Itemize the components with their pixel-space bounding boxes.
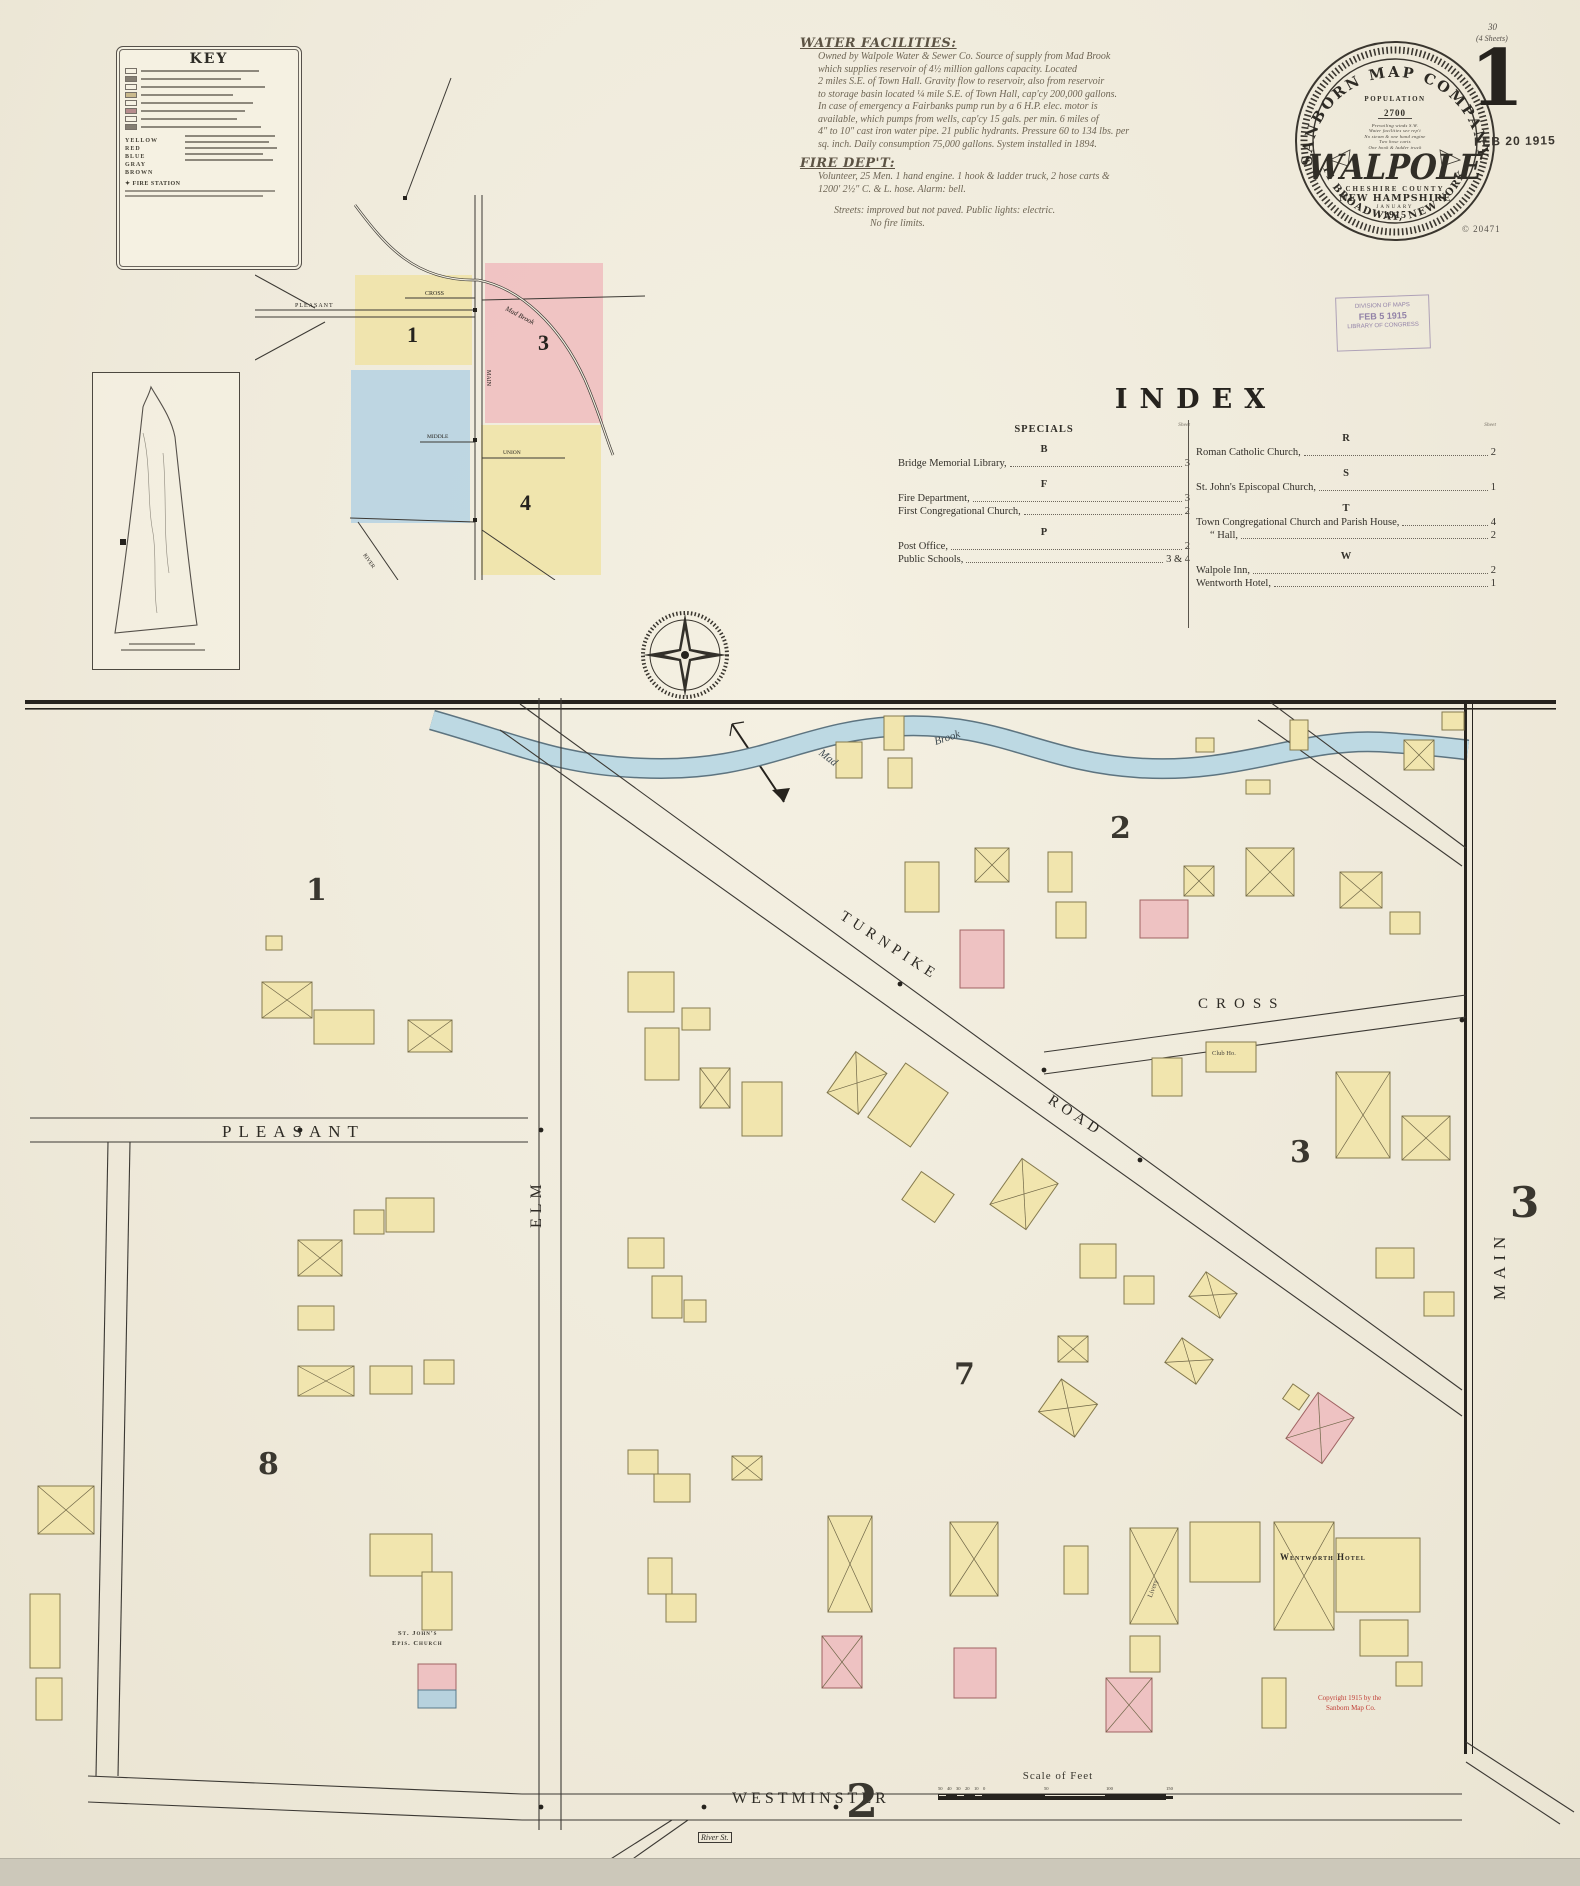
index-entry-name: Walpole Inn, — [1196, 564, 1250, 577]
building — [298, 1366, 354, 1396]
index-entry: St. John's Episcopal Church,1 — [1196, 481, 1496, 494]
index-entry-sheet-number: 2 — [1491, 529, 1496, 542]
index-entry-sheet-number: 2 — [1491, 446, 1496, 459]
index-entry-name: St. John's Episcopal Church, — [1196, 481, 1316, 494]
building — [266, 936, 282, 950]
index-entry: Fire Department,3 — [898, 492, 1190, 505]
sheet-count-note: 30 — [1488, 22, 1497, 32]
building — [1058, 1336, 1088, 1362]
building — [652, 1276, 682, 1318]
index-entry-sheet-number: 1 — [1491, 577, 1496, 590]
index-entry: “ Hall,2 — [1196, 529, 1496, 542]
map-right-border — [1464, 700, 1467, 1754]
note-line: to storage basin located ¼ mile S.E. of … — [800, 89, 1280, 102]
building — [1396, 1662, 1422, 1686]
inset-district-1: 1 — [407, 322, 418, 347]
note-line: In case of emergency a Fairbanks pump ru… — [800, 101, 1280, 114]
landmark-label: Sanborn Map Co. — [1326, 1704, 1376, 1712]
key-color-name: BLUE — [125, 153, 185, 161]
walpole-location-marker — [120, 539, 126, 545]
building — [262, 982, 312, 1018]
index-entry-name: Wentworth Hotel, — [1196, 577, 1271, 590]
building — [684, 1300, 706, 1322]
stamp-population-value: 2700 — [1378, 108, 1412, 119]
building — [1140, 900, 1188, 938]
fire-dept-text: Volunteer, 25 Men. 1 hand engine. 1 hook… — [800, 171, 1280, 196]
building — [1064, 1546, 1088, 1594]
scale-tick: 40 — [947, 1786, 952, 1791]
building — [884, 716, 904, 750]
building — [902, 1172, 954, 1223]
building — [1262, 1678, 1286, 1728]
inset-district-3: 3 — [538, 330, 549, 355]
building — [1124, 1276, 1154, 1304]
water-facilities-title: WATER FACILITIES: — [800, 36, 1280, 51]
index-entry-sheet-number: 2 — [1491, 564, 1496, 577]
district-number: 7 — [954, 1360, 975, 1390]
building — [742, 1082, 782, 1136]
index-letter: P — [898, 527, 1190, 538]
building — [888, 758, 912, 788]
building — [905, 862, 939, 912]
received-stamp-line2: FEB 5 1915 — [1337, 309, 1429, 322]
index-entry: Post Office,2 — [898, 540, 1190, 553]
key-color-list: YELLOWREDBLUEGRAYBROWN — [125, 137, 185, 177]
street-label-cross: CROSS — [1198, 996, 1286, 1013]
date-received-stamp: FEB 20 1915 — [1474, 133, 1556, 148]
building — [666, 1594, 696, 1622]
index-entry-name: Bridge Memorial Library, — [898, 457, 1007, 470]
district-number: 3 — [1510, 1182, 1539, 1224]
key-color-name: RED — [125, 145, 185, 153]
scale-tick: 50 — [938, 1786, 943, 1791]
building — [1056, 902, 1086, 938]
building — [950, 1522, 998, 1596]
stamp-population-label: POPULATION — [1292, 95, 1498, 103]
building — [1402, 1116, 1450, 1160]
building — [1274, 1522, 1334, 1630]
new-hampshire-state-inset — [92, 372, 240, 670]
index-left-column: SheetSPECIALSBBridge Memorial Library,3F… — [898, 424, 1190, 566]
note-line: which supplies reservoir of 4½ million g… — [800, 64, 1280, 77]
index-letter: F — [898, 479, 1190, 490]
index-entry-name: First Congregational Church, — [898, 505, 1021, 518]
inset-district-4: 4 — [520, 490, 531, 515]
index-letter: B — [898, 444, 1190, 455]
building — [1039, 1379, 1098, 1437]
scale-tick: 150 — [1166, 1786, 1173, 1791]
note-line: 2 miles S.E. of Town Hall. Gravity flow … — [800, 76, 1280, 89]
district-number: 2 — [1110, 814, 1131, 844]
stamp-city-name: WALPOLE — [1291, 151, 1499, 185]
building — [1165, 1338, 1213, 1384]
index-letter: S — [1196, 468, 1496, 479]
building — [990, 1158, 1058, 1229]
district-number: 1 — [306, 876, 327, 906]
inset-street-union: UNION — [503, 450, 521, 456]
inset-street-river: RIVER — [361, 553, 376, 570]
scale-tick: 20 — [965, 1786, 970, 1791]
water-facilities-notes: WATER FACILITIES: Owned by Walpole Water… — [800, 36, 1280, 230]
index-entry-sheet-number: 3 & 4 — [1166, 553, 1190, 566]
note-line: sq. inch. Daily consumption 75,000 gallo… — [800, 139, 1280, 152]
index-heading: SPECIALS — [898, 424, 1190, 435]
map-scale: Scale of Feet 5040302010050100150 — [938, 1770, 1178, 1800]
building — [38, 1486, 94, 1534]
note-line: available, which pumps from wells, cap'c… — [800, 114, 1280, 127]
inset-street-main: MAIN — [485, 370, 491, 387]
building — [1424, 1292, 1454, 1316]
index-letter: R — [1196, 433, 1496, 444]
stamp-state: NEW HAMPSHIRE — [1292, 193, 1498, 204]
new-hampshire-outline — [93, 373, 237, 667]
building-footprints — [30, 712, 1464, 1732]
key-color-name: GRAY — [125, 161, 185, 169]
index-entry-sheet-number: 1 — [1491, 481, 1496, 494]
building — [822, 1636, 862, 1688]
building — [648, 1558, 672, 1594]
scan-edge — [0, 1858, 1580, 1886]
compass-rose — [638, 608, 732, 702]
building — [1190, 1522, 1260, 1582]
key-color-name: BROWN — [125, 169, 185, 177]
scale-bar: 5040302010050100150 — [938, 1794, 1178, 1800]
note-line: 4" to 10" cast iron water pipe. 21 publi… — [800, 126, 1280, 139]
building — [1376, 1248, 1414, 1278]
building — [1390, 912, 1420, 934]
building — [1246, 780, 1270, 794]
building — [370, 1534, 432, 1576]
stamp-year: 1915 — [1292, 210, 1498, 221]
building — [424, 1360, 454, 1384]
sheet-index-inset-map: 1 3 4 PLEASANT CROSS MAIN MIDDLE UNION R… — [255, 60, 645, 580]
building — [418, 1664, 456, 1690]
building — [1048, 852, 1072, 892]
index-sheet-word: Sheet — [1484, 422, 1496, 428]
building — [628, 1238, 664, 1268]
building — [654, 1474, 690, 1502]
building — [36, 1678, 62, 1720]
building — [828, 1516, 872, 1612]
landmark-label: Epis. Church — [392, 1640, 443, 1647]
building — [836, 742, 862, 778]
landmark-label: Club Ho. — [1212, 1050, 1236, 1057]
building — [682, 1008, 710, 1030]
building — [314, 1010, 374, 1044]
building — [422, 1572, 452, 1630]
building — [1130, 1636, 1160, 1672]
sheet-number: 1 — [1470, 40, 1524, 118]
key-color-name: YELLOW — [125, 137, 185, 145]
index-right-column: SheetRRoman Catholic Church,2SSt. John's… — [1196, 424, 1496, 590]
building — [408, 1020, 452, 1052]
building — [298, 1306, 334, 1330]
district-number: 8 — [258, 1450, 279, 1480]
index-letter: T — [1196, 503, 1496, 514]
received-stamp-line3: LIBRARY OF CONGRESS — [1337, 321, 1429, 330]
index-entry: Roman Catholic Church,2 — [1196, 446, 1496, 459]
building — [1442, 712, 1464, 730]
index-entry-name: Post Office, — [898, 540, 948, 553]
landmark-label: Wentworth Hotel — [1280, 1552, 1366, 1562]
building — [1184, 866, 1214, 896]
index-entry-name: “ Hall, — [1210, 529, 1238, 542]
building — [354, 1210, 384, 1234]
scale-tick: 0 — [983, 1786, 985, 1791]
building — [1080, 1244, 1116, 1278]
index-column-divider — [1188, 420, 1189, 628]
scale-tick: 50 — [1044, 1786, 1049, 1791]
building — [1189, 1272, 1237, 1318]
library-received-stamp: DIVISION OF MAPS FEB 5 1915 LIBRARY OF C… — [1335, 294, 1431, 351]
landmark-label: St. John's — [398, 1630, 437, 1637]
inset-street-cross: CROSS — [425, 291, 444, 297]
note-line: 1200' 2½" C. & L. hose. Alarm: bell. — [800, 184, 1280, 197]
fire-limits-note: No fire limits. — [800, 217, 1280, 230]
street-label-elm: ELM — [528, 1179, 546, 1228]
building — [1246, 848, 1294, 896]
index-entry-name: Roman Catholic Church, — [1196, 446, 1301, 459]
copyright-number: © 20471 — [1462, 224, 1501, 234]
water-facilities-text: Owned by Walpole Water & Sewer Co. Sourc… — [800, 51, 1280, 151]
building — [1206, 1042, 1256, 1072]
sanborn-company-stamp: SANBORN MAP COMPANY. 11 BROADWAY, NEW YO… — [1292, 38, 1498, 244]
building — [975, 848, 1009, 882]
index-entry: Public Schools,3 & 4 — [898, 553, 1190, 566]
building — [700, 1068, 730, 1108]
note-line: Owned by Walpole Water & Sewer Co. Sourc… — [800, 51, 1280, 64]
index-entry-sheet-number: 4 — [1491, 516, 1496, 529]
district-number: 3 — [1290, 1138, 1311, 1168]
index-entry-name: Public Schools, — [898, 553, 963, 566]
building — [1130, 1528, 1178, 1624]
building — [732, 1456, 762, 1480]
building — [954, 1648, 996, 1698]
street-label-pleasant: PLEASANT — [222, 1122, 365, 1142]
stamp-notes: Prevailing winds S.W.Water facilities se… — [1292, 123, 1498, 150]
district-number: 2 — [846, 1778, 878, 1824]
index-entry: First Congregational Church,2 — [898, 505, 1190, 518]
index-entry-name: Fire Department, — [898, 492, 970, 505]
building — [1336, 1538, 1420, 1612]
building — [298, 1240, 342, 1276]
building — [418, 1690, 456, 1708]
streets-note: Streets: improved but not paved. Public … — [800, 204, 1280, 217]
building — [960, 930, 1004, 988]
inset-street-pleasant: PLEASANT — [295, 303, 334, 309]
index-entry: Wentworth Hotel,1 — [1196, 577, 1496, 590]
building — [370, 1366, 412, 1394]
index-letter: W — [1196, 551, 1496, 562]
building — [1196, 738, 1214, 752]
street-label-river-st: River St. — [698, 1832, 732, 1843]
building — [386, 1198, 434, 1232]
building — [30, 1594, 60, 1668]
building — [1283, 1384, 1310, 1410]
building — [628, 972, 674, 1012]
index-title: INDEX — [1086, 384, 1306, 415]
building — [1106, 1678, 1152, 1732]
building — [1336, 1072, 1390, 1158]
building — [1290, 720, 1308, 750]
map-top-border — [25, 700, 1556, 704]
scale-tick: 30 — [956, 1786, 961, 1791]
landmark-label: Copyright 1915 by the — [1318, 1694, 1381, 1702]
sanborn-map-sheet: KEY YELLOWREDBLUEGRAYBROWN ✦ FIRE STATIO… — [0, 0, 1580, 1886]
index-entry-name: Town Congregational Church and Parish Ho… — [1196, 516, 1399, 529]
building — [1404, 740, 1434, 770]
building — [645, 1028, 679, 1080]
note-line: Volunteer, 25 Men. 1 hand engine. 1 hook… — [800, 171, 1280, 184]
scale-tick: 10 — [974, 1786, 979, 1791]
index-entry: Walpole Inn,2 — [1196, 564, 1496, 577]
scale-label: Scale of Feet — [938, 1770, 1178, 1782]
building — [1360, 1620, 1408, 1656]
inset-street-middle: MIDDLE — [427, 434, 449, 440]
building — [628, 1450, 658, 1474]
building — [1340, 872, 1382, 908]
building — [1152, 1058, 1182, 1096]
index-entry: Town Congregational Church and Parish Ho… — [1196, 516, 1496, 529]
fire-dept-title: FIRE DEP'T: — [800, 156, 1280, 171]
index-entry: Bridge Memorial Library,3 — [898, 457, 1190, 470]
scale-tick: 100 — [1106, 1786, 1113, 1791]
street-label-main: MAIN — [1490, 1231, 1510, 1300]
